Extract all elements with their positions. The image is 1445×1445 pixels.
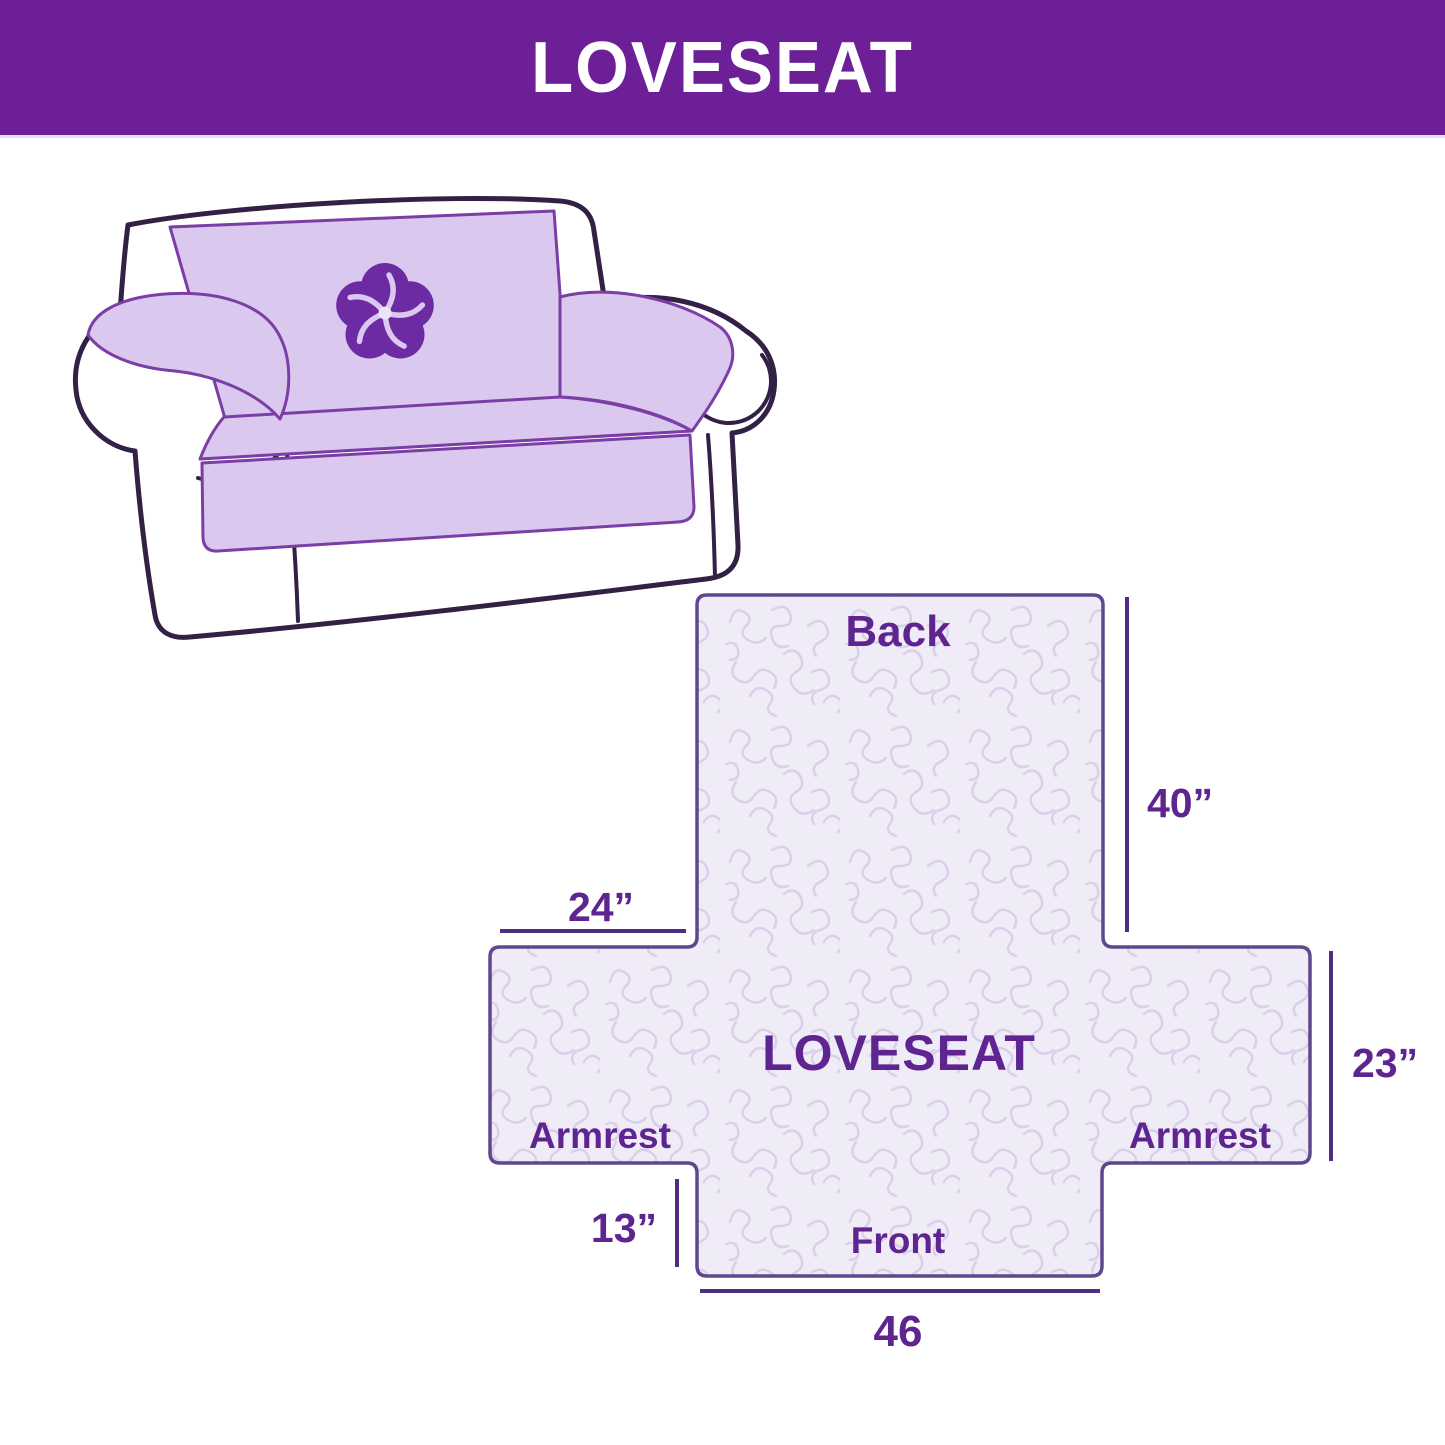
panel-label-armrest-right: Armrest [1129,1115,1271,1156]
diagram-svg: Back LOVESEAT Armrest Armrest Front 24” … [0,0,1445,1445]
page: LOVESEAT [0,0,1445,1445]
cover-dimension-diagram: Back LOVESEAT Armrest Armrest Front 24” … [0,0,1445,1445]
panel-label-armrest-left: Armrest [529,1115,671,1156]
dim-label-front-drop: 13” [591,1205,657,1251]
dim-label-bottom-width: 46 [874,1307,923,1356]
panel-label-front: Front [851,1220,946,1261]
panel-label-back: Back [845,607,951,656]
cover-cross-texture [490,595,1310,1276]
dim-label-back-height: 40” [1147,780,1213,826]
panel-label-center: LOVESEAT [762,1025,1036,1081]
cover-cross-shape [490,595,1310,1276]
dim-label-side-height: 23” [1352,1040,1418,1086]
dim-label-top-left-width: 24” [568,884,634,930]
